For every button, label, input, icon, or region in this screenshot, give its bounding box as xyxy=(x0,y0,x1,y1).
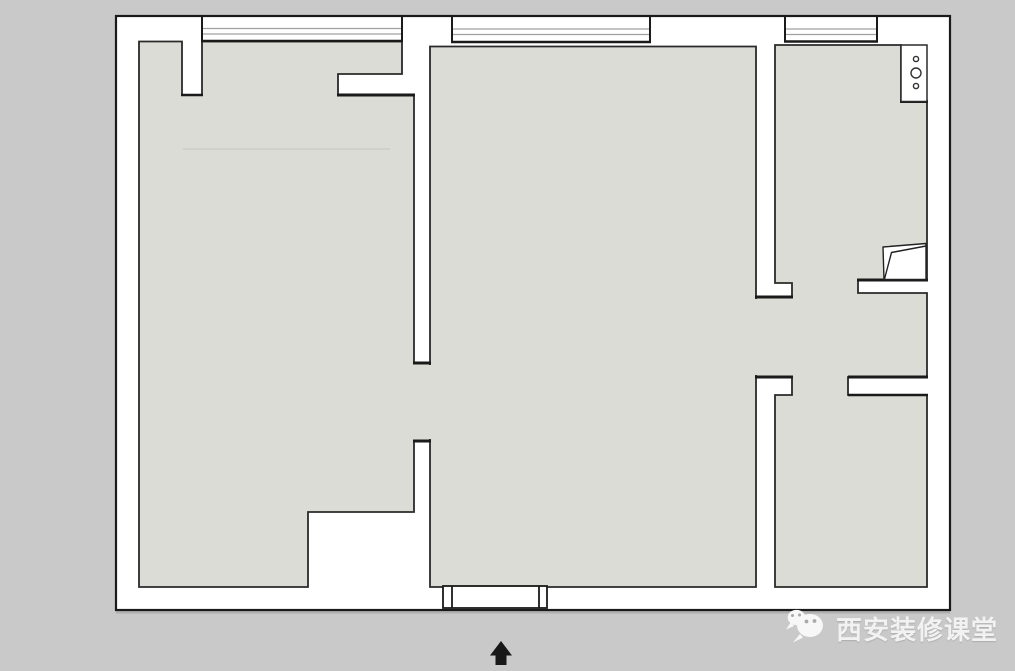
wechat-icon xyxy=(786,610,823,643)
room-center-floor xyxy=(430,47,756,588)
north-arrow-icon xyxy=(490,641,512,665)
cabinet-door-symbol xyxy=(883,244,926,280)
doorway-patch xyxy=(755,299,758,375)
room-left-floor xyxy=(139,42,430,588)
window-right xyxy=(784,16,878,43)
window-center xyxy=(451,16,651,43)
window-left xyxy=(201,16,403,42)
entry-door xyxy=(443,586,547,608)
wall-fixture-icon xyxy=(901,45,927,102)
doorway-patch xyxy=(429,365,432,439)
room-right-floor xyxy=(756,45,927,587)
floorplan-drawing xyxy=(0,0,1015,671)
floorplan-canvas xyxy=(0,0,1015,671)
floorplan-page: { "watermark": { "brand_text": "西安装修课堂",… xyxy=(0,0,1015,671)
watermark-text: 西安装修课堂 xyxy=(836,610,998,647)
